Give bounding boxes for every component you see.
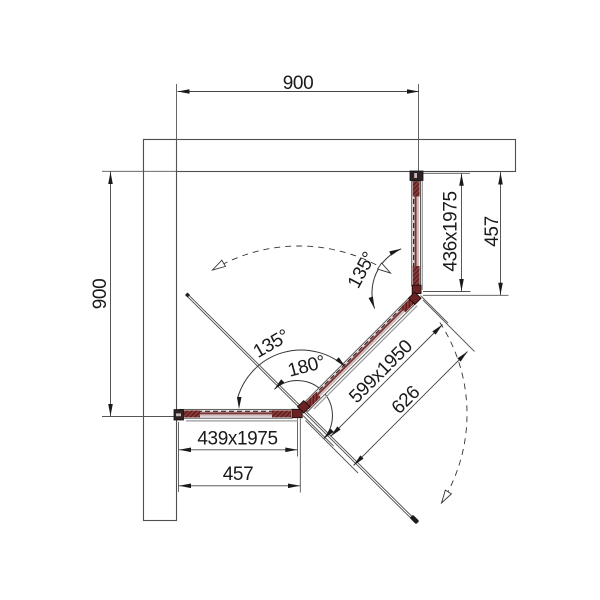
svg-text:900: 900	[90, 279, 111, 310]
svg-text:900: 900	[283, 73, 314, 94]
svg-text:457: 457	[223, 464, 254, 485]
svg-text:439x1975: 439x1975	[197, 429, 277, 450]
svg-text:457: 457	[482, 216, 503, 247]
svg-text:436x1975: 436x1975	[441, 191, 462, 271]
